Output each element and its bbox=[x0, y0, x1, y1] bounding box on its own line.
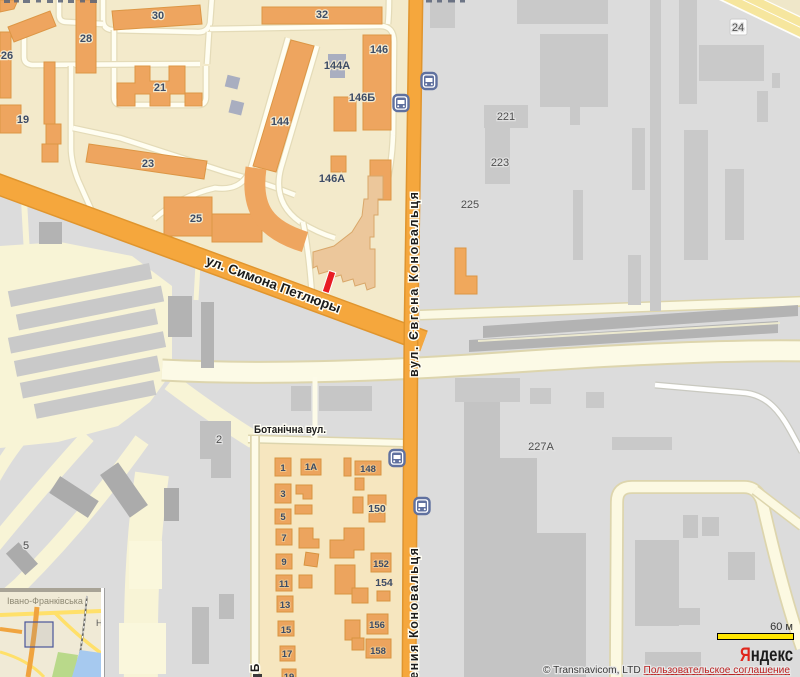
svg-text:26: 26 bbox=[1, 50, 13, 62]
svg-text:3: 3 bbox=[280, 489, 285, 500]
svg-text:154: 154 bbox=[375, 577, 393, 589]
svg-text:вул. Євгена Коновальця: вул. Євгена Коновальця bbox=[407, 191, 421, 377]
svg-text:148: 148 bbox=[360, 464, 376, 475]
svg-text:19: 19 bbox=[17, 114, 29, 126]
svg-text:146А: 146А bbox=[319, 173, 345, 185]
svg-text:150: 150 bbox=[368, 503, 386, 515]
svg-text:© Transnavicom, LTD Пользовате: © Transnavicom, LTD Пользовательское сог… bbox=[543, 664, 790, 676]
svg-text:13: 13 bbox=[280, 600, 291, 611]
svg-text:5: 5 bbox=[280, 512, 286, 523]
svg-text:1А: 1А bbox=[305, 462, 317, 473]
svg-text:223: 223 bbox=[491, 157, 509, 169]
svg-text:Б: Б bbox=[250, 664, 262, 672]
svg-text:7: 7 bbox=[281, 533, 286, 544]
svg-text:158: 158 bbox=[370, 646, 386, 657]
svg-text:25: 25 bbox=[190, 213, 202, 225]
svg-text:Яндекс: Яндекс bbox=[740, 645, 793, 666]
svg-text:21: 21 bbox=[154, 82, 166, 94]
svg-text:11: 11 bbox=[279, 579, 290, 590]
svg-text:23: 23 bbox=[142, 158, 154, 170]
svg-text:146Б: 146Б bbox=[349, 92, 375, 104]
svg-text:19: 19 bbox=[284, 672, 295, 677]
svg-text:144: 144 bbox=[271, 116, 290, 128]
svg-text:15: 15 bbox=[281, 625, 292, 636]
svg-text:24: 24 bbox=[732, 22, 744, 34]
svg-text:30: 30 bbox=[152, 10, 164, 22]
svg-text:221: 221 bbox=[497, 111, 515, 123]
svg-text:152: 152 bbox=[373, 559, 389, 570]
svg-text:227А: 227А bbox=[528, 441, 554, 453]
svg-text:2: 2 bbox=[216, 434, 222, 446]
svg-text:146: 146 bbox=[370, 44, 388, 56]
svg-text:156: 156 bbox=[369, 620, 385, 631]
svg-text:Ботанічна вул.: Ботанічна вул. bbox=[254, 424, 326, 436]
svg-text:вул. Евгения Коновальця: вул. Евгения Коновальця bbox=[407, 546, 421, 677]
svg-text:9: 9 bbox=[281, 557, 286, 568]
svg-text:1: 1 bbox=[280, 463, 286, 474]
svg-text:144А: 144А bbox=[324, 60, 350, 72]
svg-text:Івано-Франківська: Івано-Франківська bbox=[7, 596, 83, 606]
svg-text:5: 5 bbox=[23, 540, 29, 552]
svg-text:225: 225 bbox=[461, 199, 479, 211]
svg-text:60 м: 60 м bbox=[770, 621, 793, 633]
svg-text:28: 28 bbox=[80, 33, 92, 45]
svg-text:32: 32 bbox=[316, 9, 328, 21]
svg-text:17: 17 bbox=[282, 649, 293, 660]
